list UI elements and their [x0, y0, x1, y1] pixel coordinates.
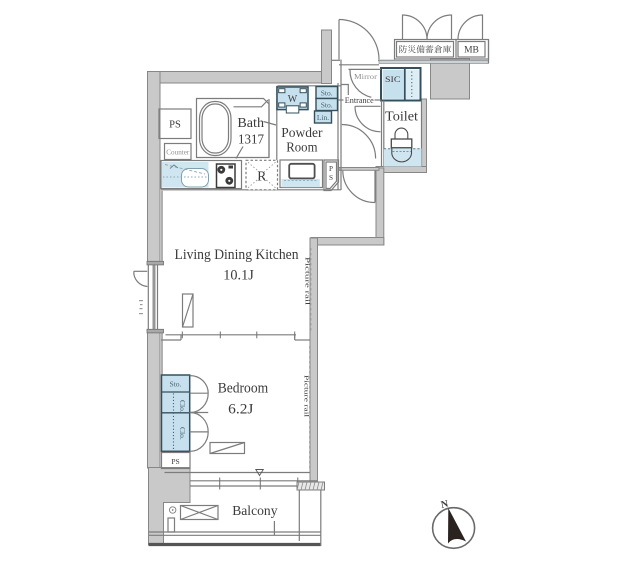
- svg-text:Sto.: Sto.: [321, 100, 333, 109]
- svg-text:MB: MB: [464, 46, 479, 56]
- svg-text:SIC: SIC: [385, 75, 401, 84]
- svg-text:Sto.: Sto.: [321, 88, 333, 97]
- svg-text:1317: 1317: [238, 132, 264, 147]
- svg-text:Mirror: Mirror: [354, 73, 378, 81]
- svg-text:Entrance: Entrance: [345, 96, 374, 105]
- svg-text:6.2J: 6.2J: [228, 402, 253, 418]
- svg-text:Clo.: Clo.: [178, 400, 187, 413]
- svg-text:10.1J: 10.1J: [223, 268, 254, 284]
- svg-text:Balcony: Balcony: [232, 504, 277, 519]
- svg-text:Room: Room: [286, 140, 317, 155]
- svg-text:R: R: [257, 169, 266, 184]
- svg-text:Picture rail: Picture rail: [304, 257, 310, 306]
- svg-text:Bath: Bath: [237, 115, 264, 130]
- svg-text:W: W: [288, 94, 298, 105]
- svg-text:PS: PS: [171, 457, 179, 466]
- svg-text:Toilet: Toilet: [385, 109, 418, 124]
- svg-text:Picture rail: Picture rail: [303, 375, 309, 418]
- svg-text:S: S: [329, 174, 333, 182]
- svg-text:Powder: Powder: [281, 126, 323, 141]
- svg-text:Clo.: Clo.: [178, 427, 187, 440]
- svg-text:Bedroom: Bedroom: [218, 381, 269, 397]
- svg-text:Living Dining Kitchen: Living Dining Kitchen: [175, 247, 300, 263]
- svg-text:Lin.: Lin.: [317, 113, 329, 122]
- svg-text:PS: PS: [169, 120, 181, 131]
- svg-text:P: P: [329, 165, 333, 173]
- svg-text:Counter: Counter: [166, 149, 190, 156]
- svg-text:Sto.: Sto.: [170, 380, 182, 389]
